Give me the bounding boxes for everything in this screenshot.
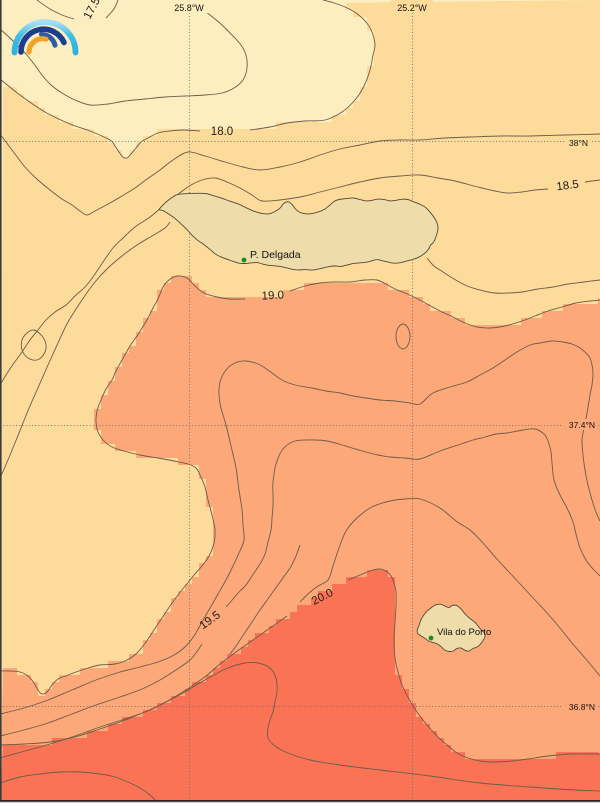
svg-text:Vila do Porto: Vila do Porto: [437, 627, 491, 638]
svg-text:P. Delgada: P. Delgada: [250, 249, 301, 261]
svg-text:36.8°N: 36.8°N: [569, 702, 595, 712]
svg-text:37.4°N: 37.4°N: [569, 420, 595, 430]
svg-text:18.0: 18.0: [211, 126, 233, 138]
svg-text:19.0: 19.0: [261, 289, 284, 302]
svg-text:25.2°W: 25.2°W: [397, 3, 427, 13]
svg-text:38°N: 38°N: [569, 138, 588, 148]
svg-text:25.8°W: 25.8°W: [174, 3, 204, 13]
